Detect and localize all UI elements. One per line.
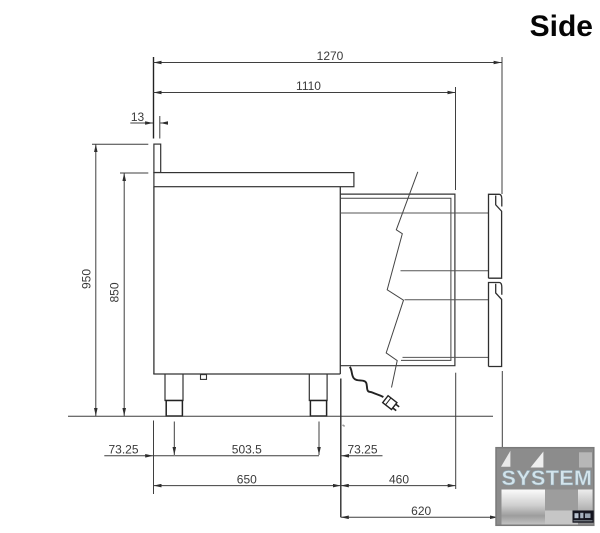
- svg-text:73.25: 73.25: [347, 443, 377, 457]
- svg-text:1270: 1270: [317, 49, 344, 63]
- svg-text:850: 850: [108, 282, 122, 302]
- svg-text:Side: Side: [530, 10, 593, 43]
- svg-text:650: 650: [237, 472, 257, 486]
- svg-text:73.25: 73.25: [108, 443, 138, 457]
- svg-text:620: 620: [411, 504, 431, 518]
- svg-text:503.5: 503.5: [232, 443, 262, 457]
- svg-text:13: 13: [131, 110, 145, 124]
- svg-text:950: 950: [79, 269, 93, 289]
- svg-text:1110: 1110: [296, 79, 321, 93]
- svg-text:460: 460: [389, 472, 409, 486]
- svg-text:SYSTEM: SYSTEM: [502, 466, 593, 490]
